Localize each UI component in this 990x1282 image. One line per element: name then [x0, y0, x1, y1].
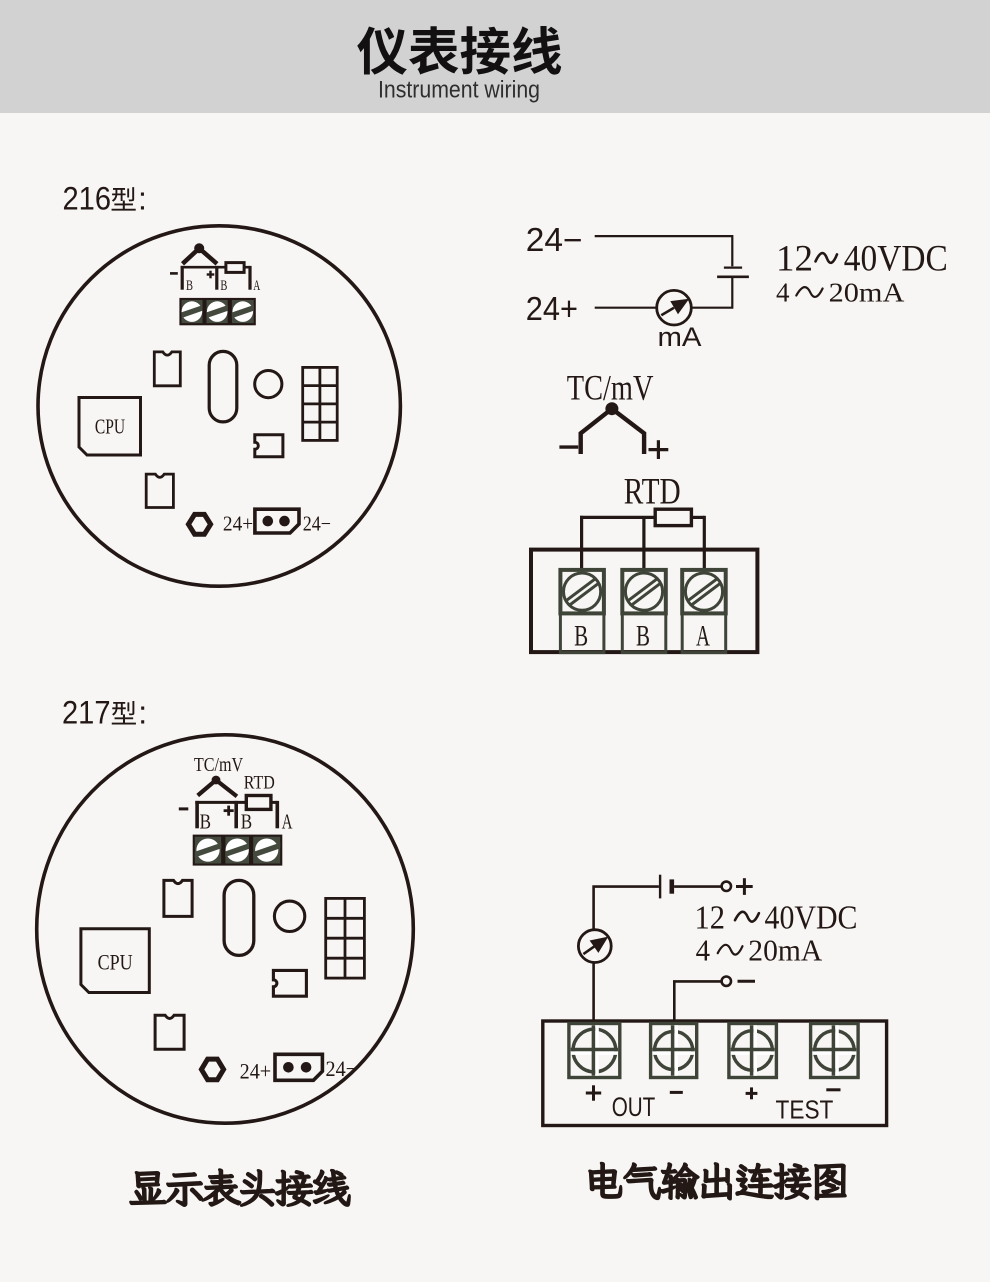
svg-text:12: 12: [695, 900, 726, 937]
svg-text:20mA: 20mA: [829, 277, 905, 308]
svg-text:A: A: [253, 278, 260, 294]
svg-text:B: B: [220, 278, 227, 294]
svg-text:A: A: [282, 809, 293, 833]
svg-text:24−: 24−: [303, 512, 331, 536]
svg-text:216: 216: [63, 180, 112, 216]
svg-text:B: B: [241, 809, 252, 833]
svg-text:12: 12: [776, 237, 813, 278]
svg-text:B: B: [574, 619, 588, 652]
svg-text:OUT: OUT: [612, 1092, 656, 1122]
svg-text::: :: [138, 694, 147, 730]
svg-text:B: B: [636, 619, 650, 652]
svg-text:TC/mV: TC/mV: [194, 754, 243, 776]
svg-text:B: B: [186, 278, 193, 294]
svg-text:24+: 24+: [223, 512, 253, 536]
svg-text::: :: [138, 180, 147, 216]
svg-text:24−: 24−: [326, 1056, 358, 1081]
svg-text:217: 217: [62, 694, 111, 730]
svg-text:B: B: [200, 809, 211, 833]
svg-text:40VDC: 40VDC: [844, 237, 948, 278]
svg-text:CPU: CPU: [95, 414, 126, 438]
svg-text:RTD: RTD: [244, 773, 275, 794]
svg-text:4: 4: [776, 277, 790, 308]
svg-text:24+: 24+: [240, 1058, 272, 1083]
svg-text:A: A: [696, 619, 710, 652]
svg-text:RTD: RTD: [624, 472, 681, 513]
svg-text:24−: 24−: [526, 221, 583, 258]
svg-text:mA: mA: [658, 322, 702, 352]
svg-text:24+: 24+: [526, 290, 578, 327]
svg-text:CPU: CPU: [98, 950, 133, 975]
svg-text:4: 4: [696, 933, 710, 967]
svg-text:40VDC: 40VDC: [765, 900, 858, 937]
svg-text:TEST: TEST: [776, 1094, 834, 1124]
svg-text:Instrument wiring: Instrument wiring: [378, 77, 540, 104]
svg-text:TC/mV: TC/mV: [567, 367, 654, 407]
svg-text:20mA: 20mA: [748, 933, 822, 967]
